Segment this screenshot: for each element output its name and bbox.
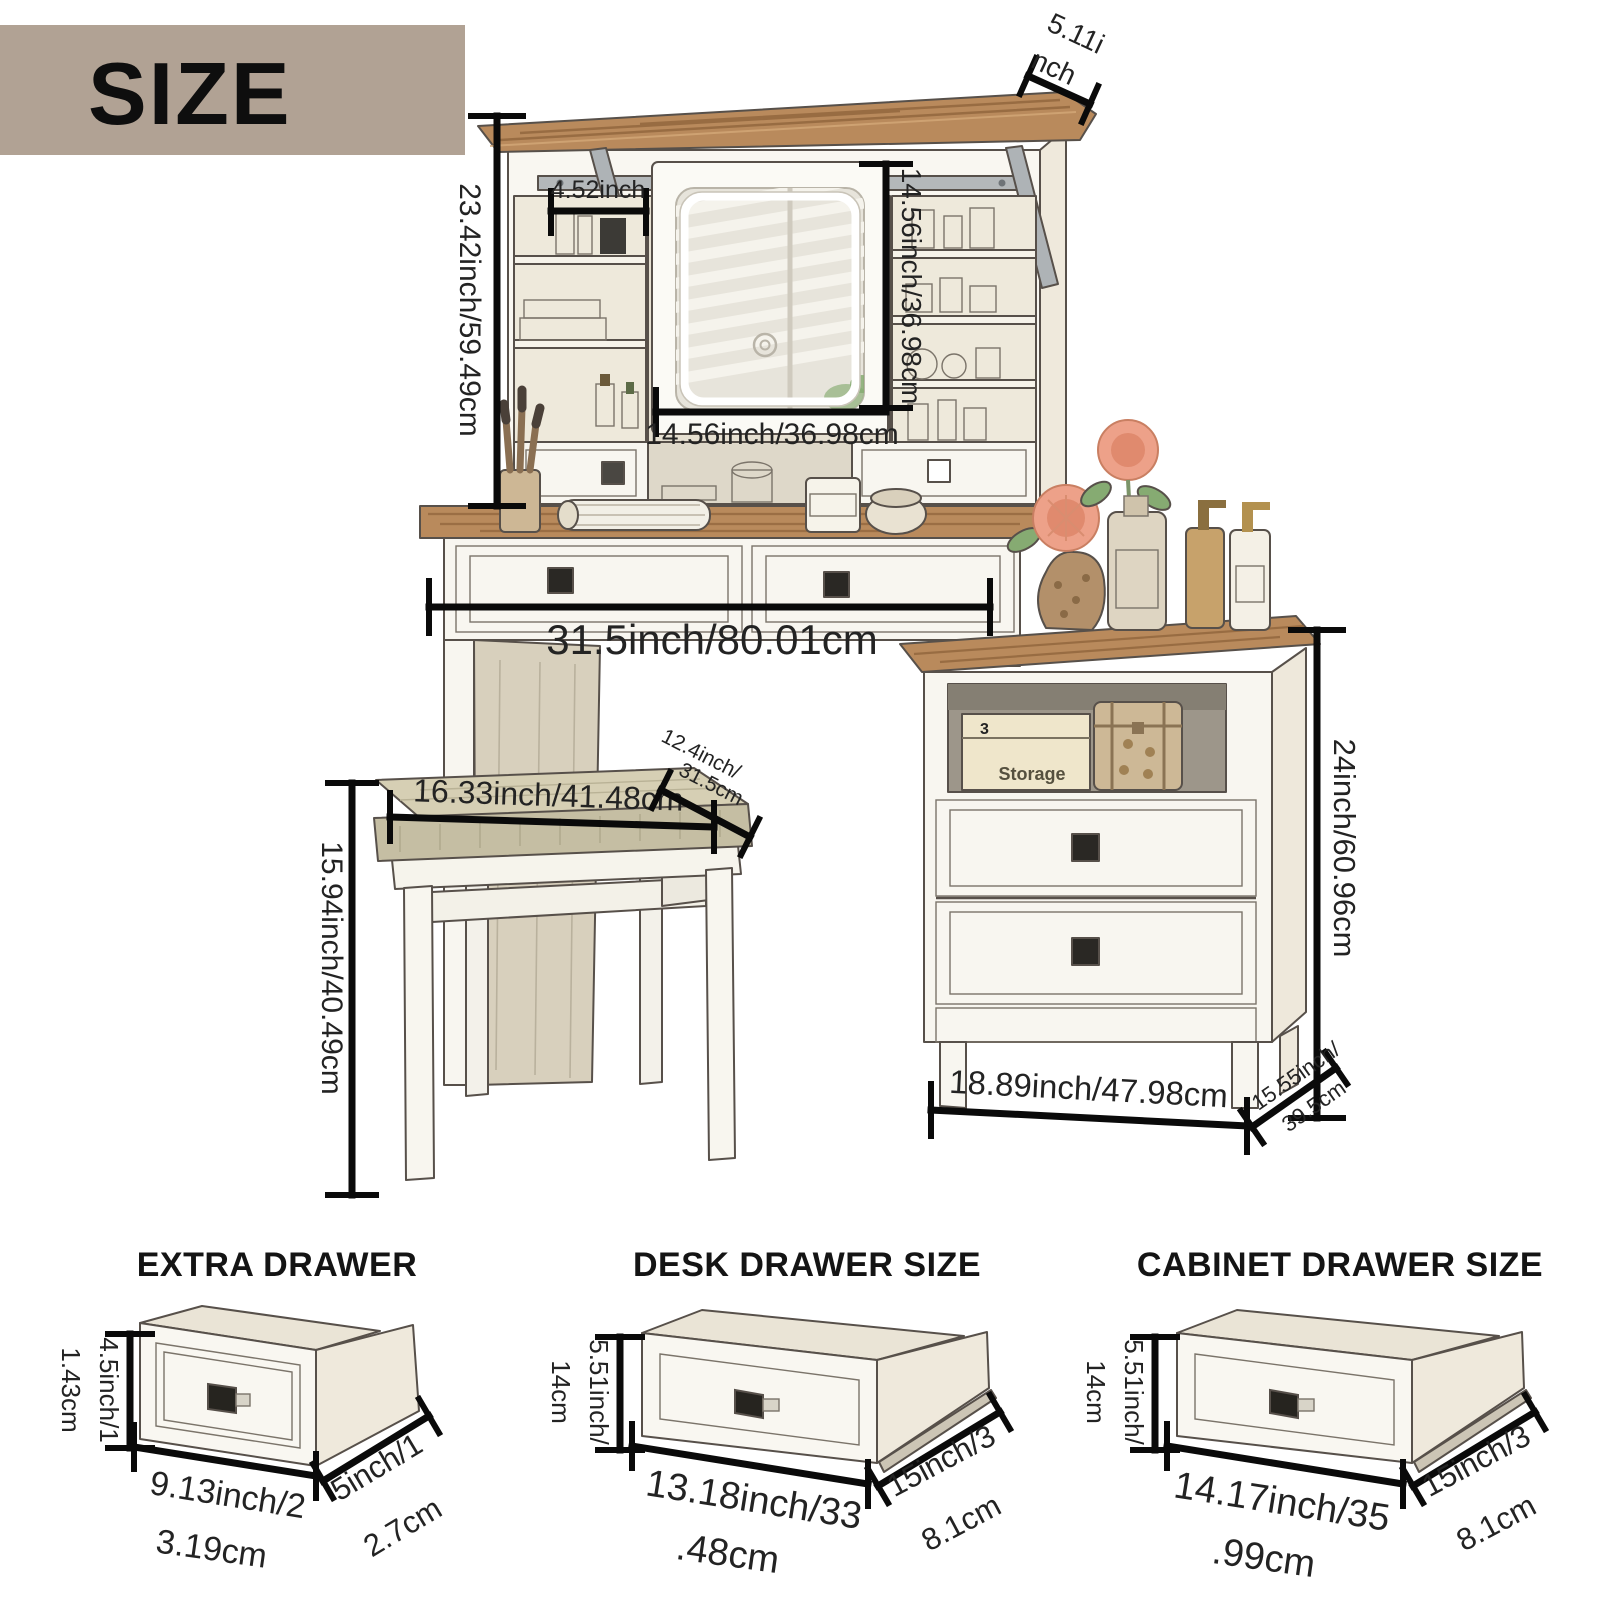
desk-drawer-section: DESK DRAWER SIZE 5.51inch/ 14cm 13.18inc… (546, 1246, 1010, 1582)
cabinet-drawer-height-label-2: 14cm (1081, 1360, 1111, 1424)
hutch-left-shelves (514, 196, 646, 442)
hutch-depth-label-2: nch (1027, 44, 1081, 91)
sliding-mirror (652, 162, 888, 434)
mirror-width-label: 14.56inch/36.98cm (645, 418, 899, 451)
stool-leg-front-left (404, 886, 434, 1180)
extra-drawer-width-label-2: 3.19cm (154, 1523, 270, 1576)
cabinet-drawer-section: CABINET DRAWER SIZE 5.51inch/ 14cm 14.17… (1081, 1246, 1545, 1586)
extra-drawer-knob (208, 1384, 236, 1413)
brush-cup (500, 470, 540, 532)
cabinet-width-label: 18.89inch/47.98cm (948, 1063, 1228, 1115)
extra-drawer-height-label-1: 4.5inch/1 (94, 1337, 124, 1443)
cream-jar (806, 478, 860, 532)
cabinet-drawer-knob-bottom (1072, 938, 1099, 965)
stool-leg-front-right (706, 868, 735, 1160)
desk-drawer-height-label-1: 5.51inch/ (584, 1339, 614, 1445)
monogram-trunk (1094, 702, 1182, 790)
desk-drawer-width-label-1: 13.18inch/33 (643, 1462, 865, 1538)
textured-vase (1038, 552, 1105, 630)
storage-box-label: Storage (998, 764, 1065, 784)
hutch-wood-top (478, 92, 1096, 152)
cabinet-height-label: 24inch/60.96cm (1327, 739, 1362, 958)
stool-height-label: 15.94inch/40.49cm (315, 841, 348, 1095)
desk-drawer-height-label-2: 14cm (546, 1360, 576, 1424)
desk-drawer-depth-label-2: 8.1cm (916, 1487, 1007, 1558)
size-diagram-page: SIZE (0, 0, 1600, 1600)
diagram-canvas: SIZE (0, 0, 1600, 1600)
cabinet-drawer-title: CABINET DRAWER SIZE (1137, 1246, 1543, 1284)
desk-drawer-knob-left (548, 568, 573, 593)
storage-box-number: 3 (980, 721, 989, 738)
cabinet-drawer-knob (1270, 1390, 1298, 1418)
cabinet-drawer-knob-top (1072, 834, 1099, 861)
extra-drawer-illustration (140, 1306, 419, 1466)
extra-drawer-title: EXTRA DRAWER (137, 1246, 418, 1284)
storage-box: 3 Storage (962, 714, 1090, 790)
amber-pump-bottle (1186, 528, 1224, 628)
hutch-drawer-knob-right (928, 460, 950, 482)
desk-drawer-width-label-2: .48cm (674, 1526, 782, 1582)
hutch-height-label: 23.42inch/59.49cm (453, 183, 486, 437)
header: SIZE (0, 25, 465, 155)
page-title: SIZE (88, 44, 292, 143)
desk-drawer-knob (735, 1390, 763, 1418)
shelf-width-label: 4.52inch (551, 176, 646, 204)
desk-drawer-title: DESK DRAWER SIZE (633, 1246, 981, 1284)
desk-drawer-knob-right (824, 572, 849, 597)
hutch-drawer-knob-left (602, 462, 624, 484)
cabinet-drawer-depth-label-2: 8.1cm (1451, 1487, 1542, 1558)
cabinet-drawer-height-label-1: 5.51inch/ (1119, 1339, 1149, 1445)
mirror-height-label: 14.56inch/36.98cm (896, 168, 927, 405)
cabinet-drawer-width-label-2: .99cm (1210, 1530, 1318, 1586)
extra-drawer-depth-label-2: 2.7cm (357, 1490, 447, 1563)
extra-drawer-height-label-2: 1.43cm (56, 1347, 86, 1432)
desk-width-label: 31.5inch/80.01cm (546, 616, 878, 663)
hutch-small-drawers (514, 442, 1036, 504)
side-cabinet: 3 Storage (900, 616, 1320, 1108)
extra-drawer-section: EXTRA DRAWER 4.5inch/1 1.43cm 9.13inch/2… (56, 1246, 448, 1576)
